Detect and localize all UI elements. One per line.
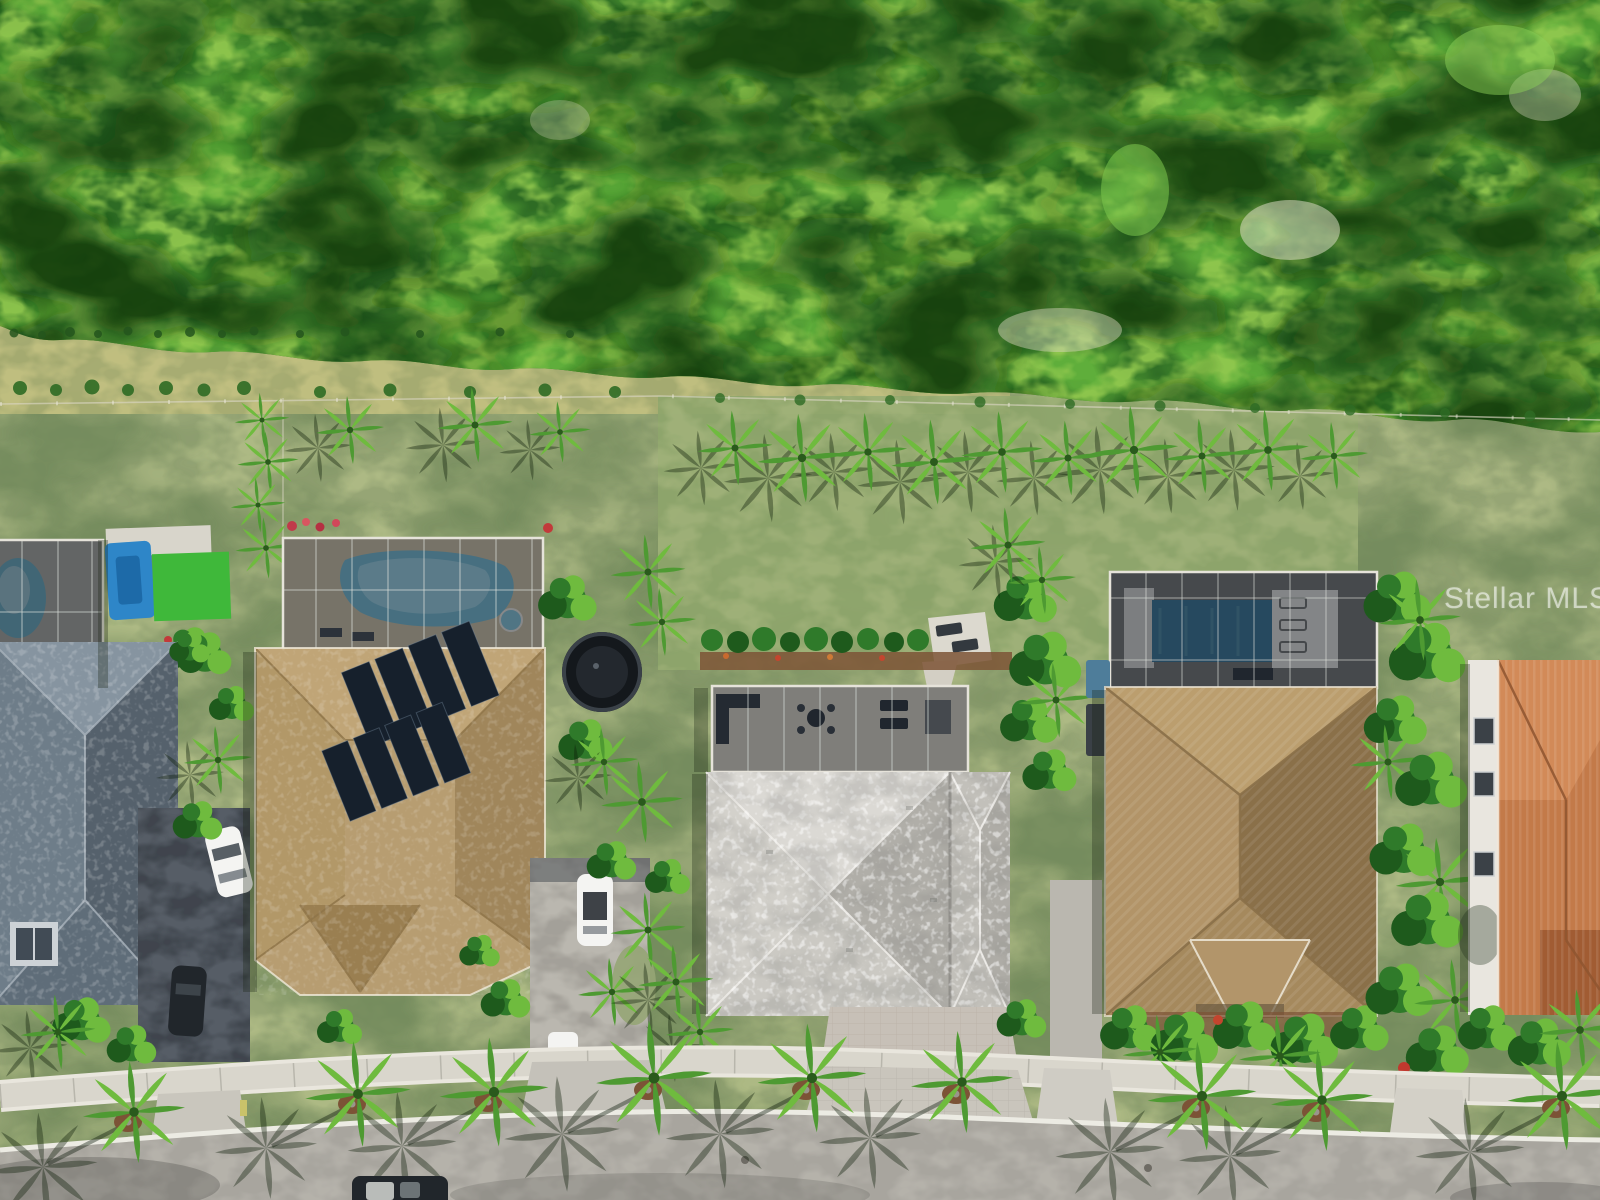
dead-branches [1240, 200, 1340, 260]
yard-marker [240, 1100, 247, 1116]
house4-pool-enclosure [1110, 572, 1377, 688]
house2-trampoline [562, 632, 642, 712]
house2-roof [255, 621, 545, 995]
street-vehicle-dark [352, 1176, 448, 1200]
utility-cover [1144, 1164, 1152, 1172]
house5-window [1474, 772, 1494, 796]
house2-pool-enclosure [283, 538, 543, 653]
house-5 [1458, 660, 1600, 1071]
house5-window [1474, 718, 1494, 744]
watermark: Stellar MLS [1444, 582, 1600, 616]
palm-treetop [1101, 144, 1169, 236]
house1-dark-car [168, 965, 208, 1037]
house3-lanai [712, 686, 968, 772]
house4-roof [1105, 687, 1377, 1018]
house1-artificial-turf [152, 552, 231, 622]
house5-roof [1498, 660, 1600, 1015]
aerial-photo: Stellar MLS [0, 0, 1600, 1200]
house2-white-suv [577, 874, 613, 946]
aerial-photo-canvas [0, 0, 1600, 1200]
house5-window [1474, 852, 1494, 876]
house3-roof [706, 772, 1010, 1038]
